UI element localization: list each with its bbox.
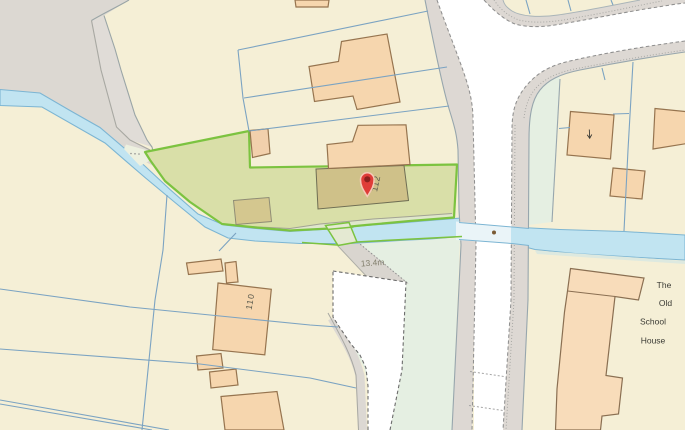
svg-text:School: School [640,317,666,327]
svg-text:The: The [657,280,672,290]
svg-text:13.4m: 13.4m [360,257,384,269]
svg-text:Old: Old [659,298,673,308]
svg-text:House: House [641,336,666,346]
